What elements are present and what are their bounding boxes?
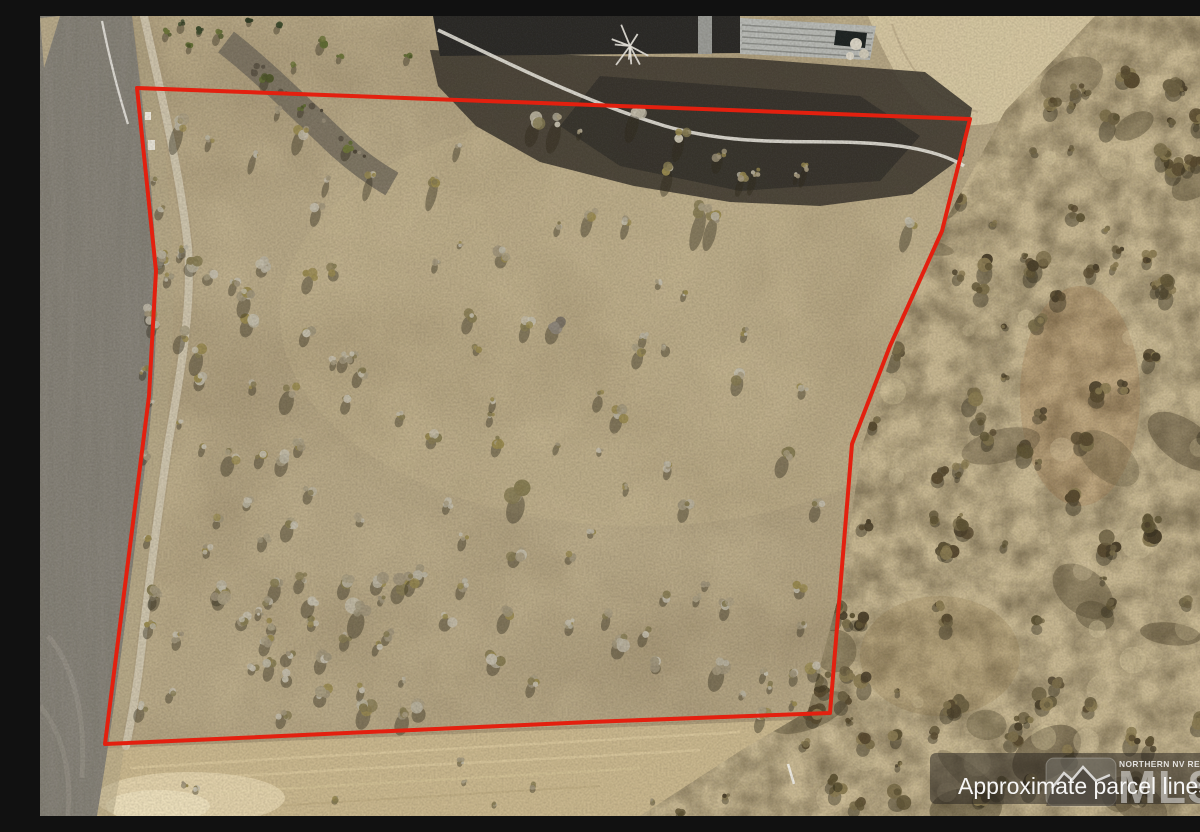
aerial-photo: NORTHERN NV REGIONAL MLS Approximate par… [40, 16, 1200, 816]
aerial-photo-canvas: NORTHERN NV REGIONAL MLS Approximate par… [40, 16, 1200, 816]
parcel-lines-label: Approximate parcel lines [958, 773, 1200, 799]
photo-grain-light [40, 16, 1200, 816]
watermark: NORTHERN NV REGIONAL MLS Approximate par… [930, 753, 1200, 813]
